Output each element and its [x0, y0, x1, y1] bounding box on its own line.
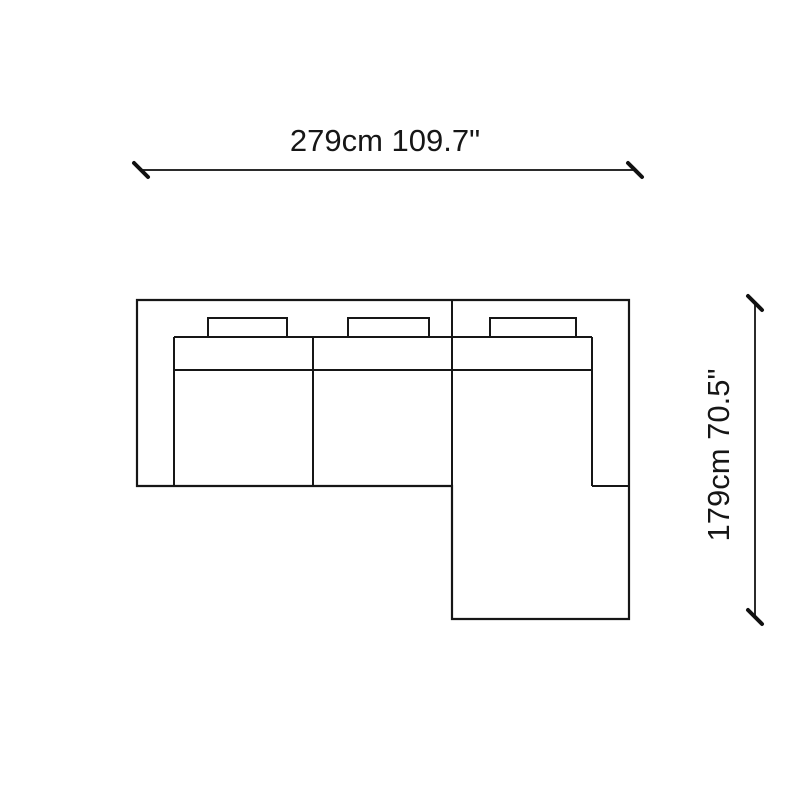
- furniture-dimension-diagram: 279cm 109.7" 179cm 70.5": [0, 0, 800, 800]
- height-dimension-label: 179cm 70.5": [701, 369, 736, 542]
- width-dimension-label: 279cm 109.7": [290, 123, 480, 158]
- height-dimension: 179cm 70.5": [701, 296, 762, 624]
- back-cushion-1: [208, 318, 287, 337]
- width-dimension: 279cm 109.7": [134, 123, 642, 177]
- sofa-body: [137, 300, 629, 619]
- back-cushion-3: [490, 318, 576, 337]
- sofa-outline: [137, 300, 629, 619]
- back-cushion-2: [348, 318, 429, 337]
- sofa-top-view-drawing: 279cm 109.7" 179cm 70.5": [0, 0, 800, 800]
